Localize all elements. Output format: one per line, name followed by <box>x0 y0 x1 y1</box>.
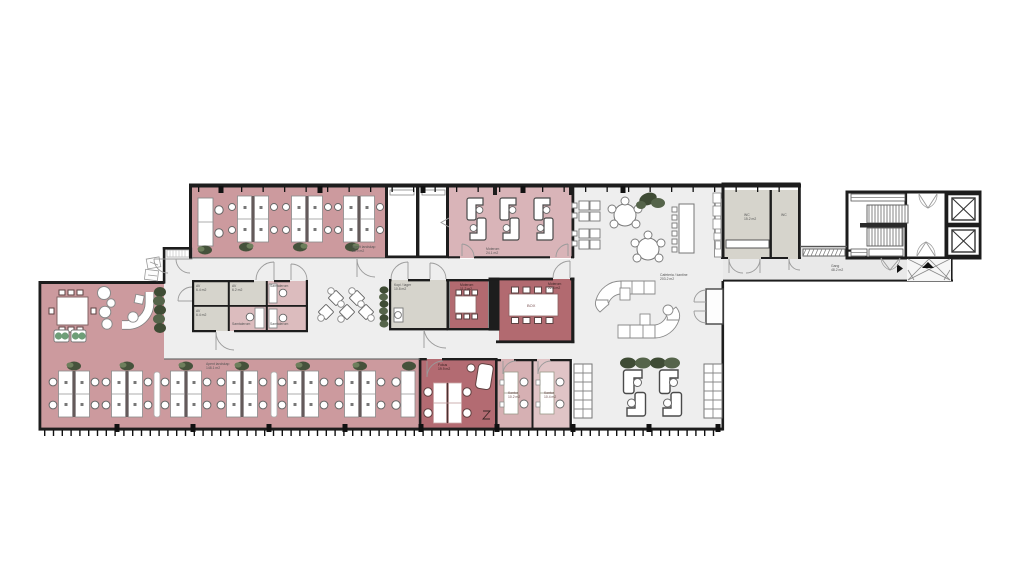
svg-text:22.4 m2: 22.4 m2 <box>548 286 560 290</box>
svg-text:10.2 m2: 10.2 m2 <box>508 395 520 399</box>
svg-text:6.4 m2: 6.4 m2 <box>196 313 206 317</box>
svg-text:19.9 m2: 19.9 m2 <box>438 367 450 371</box>
svg-text:88.9 m2: 88.9 m2 <box>352 249 364 253</box>
svg-text:11.2 m2: 11.2 m2 <box>460 287 472 291</box>
svg-text:10.8 m2: 10.8 m2 <box>394 287 406 291</box>
svg-text:6.4 m2: 6.4 m2 <box>196 288 206 292</box>
svg-text:Samtalerom: Samtalerom <box>232 322 250 326</box>
svg-text:BOX: BOX <box>527 303 536 308</box>
svg-text:WC: WC <box>781 213 787 217</box>
svg-text:148.1 m2: 148.1 m2 <box>206 366 220 370</box>
svg-text:15.2 m2: 15.2 m2 <box>744 217 756 221</box>
svg-text:48.2 m2: 48.2 m2 <box>831 268 843 272</box>
svg-text:203.2 m2: 203.2 m2 <box>660 277 674 281</box>
svg-text:24.1 m2: 24.1 m2 <box>486 251 498 255</box>
svg-text:Samtalerom: Samtalerom <box>270 322 288 326</box>
svg-text:6.2 m2: 6.2 m2 <box>232 288 242 292</box>
svg-text:Samtalerom: Samtalerom <box>270 284 288 288</box>
svg-text:10.4 m2: 10.4 m2 <box>544 395 556 399</box>
